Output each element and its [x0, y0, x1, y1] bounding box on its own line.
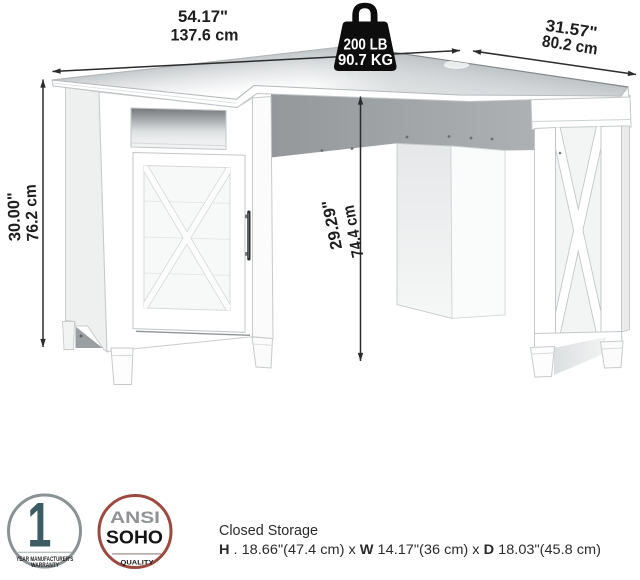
svg-text:SOHO: SOHO — [106, 528, 163, 548]
svg-text:Closed Storage: Closed Storage — [219, 523, 318, 539]
svg-text:WARRANTY: WARRANTY — [31, 562, 60, 569]
svg-text:H . 18.66"(47.4 cm) x W 14.17": H . 18.66"(47.4 cm) x W 14.17"(36 cm) x … — [219, 541, 601, 557]
svg-text:137.6 cm: 137.6 cm — [171, 26, 239, 45]
svg-text:76.2 cm: 76.2 cm — [22, 184, 43, 242]
svg-text:QUALITY: QUALITY — [121, 559, 155, 566]
svg-text:1: 1 — [27, 491, 51, 561]
svg-text:ANSI: ANSI — [110, 508, 160, 527]
svg-text:90.7 KG: 90.7 KG — [338, 52, 393, 69]
svg-text:54.17": 54.17" — [178, 7, 228, 26]
